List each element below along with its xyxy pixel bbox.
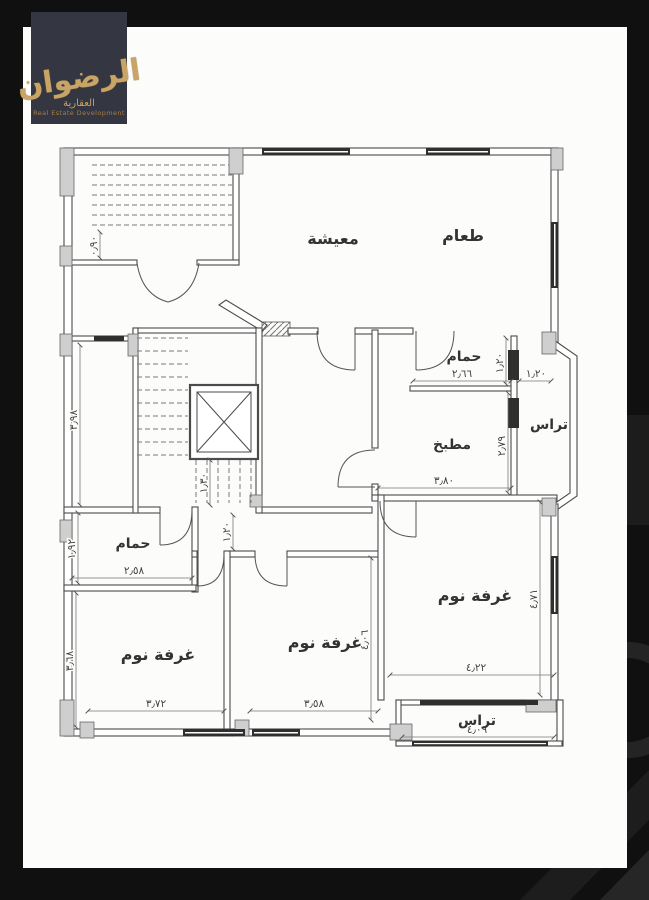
wall-hall-top-b: [355, 328, 413, 334]
wall-bath-top-bottom: [410, 386, 516, 391]
dim-terrace-right-width: ١٫٢٠: [526, 368, 546, 380]
wall-diagonal: [219, 300, 267, 331]
room-label-terrace-bottom: تراس: [458, 713, 496, 729]
room-label-kitchen: مطبخ: [433, 437, 471, 453]
dim-bedroom-left-width: ٣٫٧٢: [146, 698, 167, 710]
dim-bath-top-height: ١٫٢٠: [494, 353, 506, 373]
wall-entrance-right: [197, 260, 239, 265]
room-label-bedroom-left: غرفة نوم: [121, 645, 195, 664]
dim-kitchen-height: ٢٫٧٩: [496, 435, 508, 456]
dim-hall-width: ١٫٢٠: [221, 522, 233, 542]
room-label-bedroom-middle: غرفة نوم: [288, 633, 362, 652]
wall-kitchen-bottom: [372, 495, 557, 501]
room-label-bedroom-right: غرفة نوم: [438, 586, 512, 605]
room-label-bathroom-left: حمام: [116, 536, 151, 552]
wall-left: [64, 148, 72, 736]
wall-kitchen-left-upper: [372, 330, 378, 448]
dim-bedroom-right-width: ٤٫٢٢: [466, 662, 487, 674]
logo-calligraphy: الرضوان: [16, 55, 143, 102]
elevator-shaft: [190, 385, 258, 459]
bedroom-right-door: [380, 501, 416, 537]
wall-stair-core-top: [133, 328, 262, 333]
dim-entry-landing: ٠٫٩٠: [88, 236, 100, 256]
wall-bedroom-mid-right: [378, 495, 384, 700]
wall-mid-left: [64, 507, 160, 513]
entry-steps-hatch: [92, 155, 232, 225]
logo-tagline: Real Estate Development: [33, 109, 125, 118]
wall-bedrooms-top-a: [229, 551, 255, 557]
dim-bath-top-width: ٢٫٦٦: [452, 368, 473, 380]
bathroom-left-door: [160, 510, 192, 545]
hatched-column: [262, 322, 290, 336]
bedroom-left-door: [197, 554, 224, 586]
terrace-bottom-right-wall: [557, 700, 563, 746]
room-label-terrace-right: تراس: [530, 417, 568, 433]
dim-kitchen-width: ٣٫٨٠: [434, 475, 454, 487]
doors: [137, 263, 454, 586]
wall-hall-top-a: [288, 328, 318, 334]
stair-mid-flight: [137, 338, 188, 455]
room-label-bathroom-top: حمام: [447, 349, 482, 365]
room-label-dining: طعام: [442, 226, 484, 245]
floor-plan: ٢٫٦٦ ١٫٢٠ ١٫٢٠ ٢٫٧٩ ٣٫٨٠ ٠٫٩٠ ٣٫٩٨ ١٫٣٠ …: [0, 0, 649, 900]
wall-bedroom-left-mid: [224, 551, 230, 729]
wall-entrance-left: [64, 260, 137, 265]
wall-hall-jamb: [192, 551, 197, 557]
dim-bath-left-width: ٢٫٥٨: [124, 565, 145, 577]
dim-bedroom-left-height: ٣٫٦٨: [64, 650, 76, 671]
dim-bath-left-height: ١٫٩٢: [66, 538, 78, 559]
entrance-double-door: [137, 263, 199, 302]
dim-bedroom-middle-width: ٣٫٥٨: [304, 698, 325, 710]
wall-bedrooms-top-b: [287, 551, 382, 557]
company-logo: الرضوان العقارية Real Estate Development: [31, 12, 127, 124]
bedroom-middle-door: [255, 554, 287, 586]
wall-bath-left-bottom: [64, 585, 196, 591]
dim-stair-hall-upper: ٣٫٩٨: [68, 409, 80, 430]
wall-mid-right: [258, 507, 372, 513]
dim-stair-flight: ١٫٣٠: [198, 473, 210, 493]
kitchen-door: [338, 450, 375, 487]
room-labels: معيشة طعام حمام تراس مطبخ حمام غرفة نوم …: [116, 226, 569, 729]
screenshot-stage: الرضوان العقارية Real Estate Development: [0, 0, 649, 900]
room-label-living: معيشة: [307, 229, 358, 248]
logo-subtitle: العقارية: [63, 98, 95, 109]
dim-bedroom-right-height: ٤٫٧١: [528, 589, 540, 609]
living-door: [317, 331, 355, 370]
